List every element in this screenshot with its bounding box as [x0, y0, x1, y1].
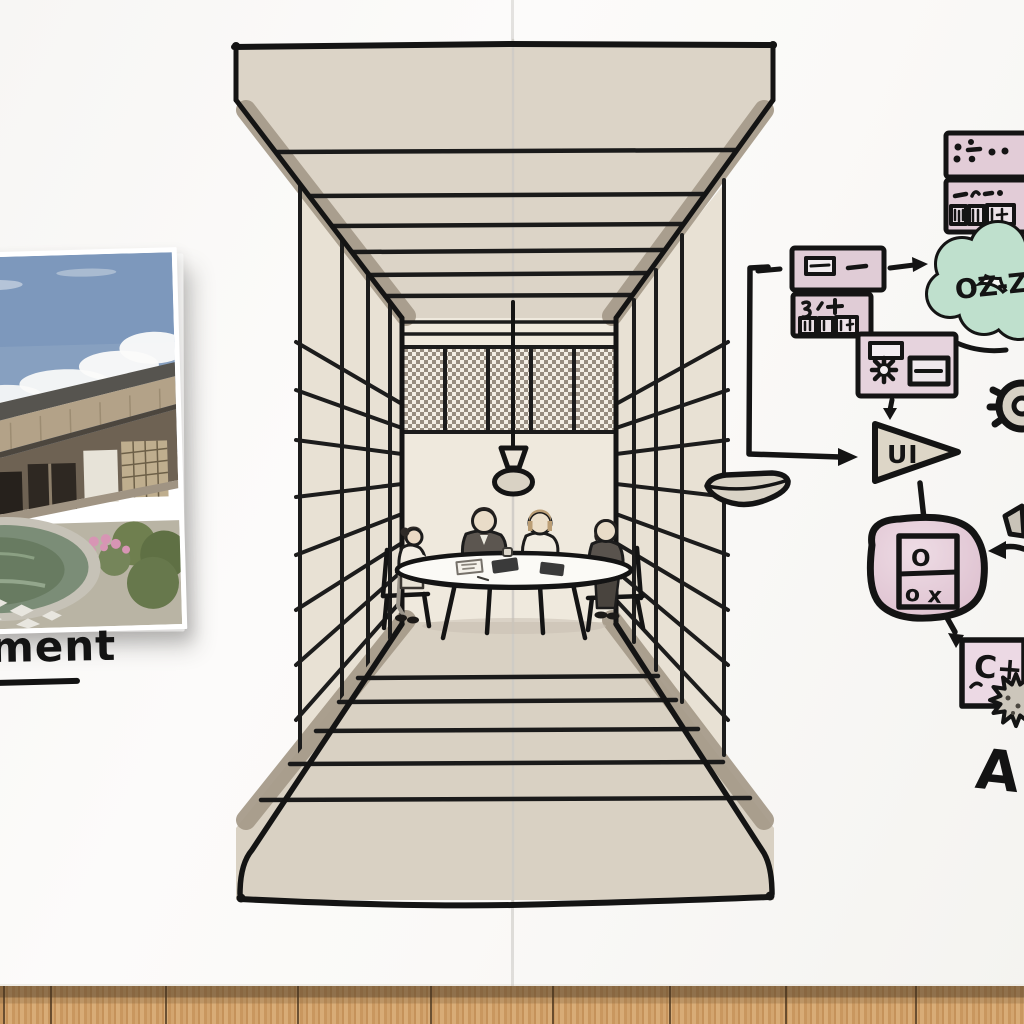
- toggle-top-label: O: [911, 546, 931, 572]
- card-with-thumbnail: [792, 248, 884, 290]
- table-shadow: [422, 618, 606, 634]
- arrow-into-toggle: [988, 541, 1024, 559]
- pinned-photo: [0, 247, 187, 635]
- handwritten-letter-a: A: [973, 742, 1022, 802]
- photo-frame: [0, 247, 187, 635]
- lamp-shade: [501, 448, 526, 468]
- photo-garden: [0, 512, 182, 630]
- note-box-dots: [946, 133, 1024, 177]
- arrow-card-down: [883, 400, 897, 420]
- handwritten-label-ment: ment: [0, 625, 117, 669]
- arrow-card-to-cloud: [890, 257, 928, 272]
- gear-node: [990, 383, 1024, 429]
- diamond-icon: [1005, 506, 1024, 536]
- flowchart: OZ-Z: [707, 133, 1024, 726]
- checkered-panels: [402, 347, 616, 432]
- toggle-panel-node: O o x: [870, 517, 984, 618]
- ui-arrow-node: UI: [875, 424, 958, 519]
- lamp-bulb: [495, 470, 533, 494]
- toggle-bottom-label: o x: [904, 582, 943, 610]
- card-with-marks: [793, 294, 871, 336]
- dash-cloud-to-gear: [957, 343, 1006, 351]
- japanese-house-photo: [0, 252, 182, 630]
- cloud-node: OZ-Z: [928, 223, 1024, 338]
- card-with-gear: [858, 334, 956, 396]
- bowl-node: [707, 473, 788, 504]
- ui-label: UI: [887, 440, 919, 469]
- whiteboard: { "board": { "surface": "whiteboard-two-…: [0, 0, 1024, 1024]
- perspective-room: [232, 40, 777, 905]
- gear-scribble-icon: [872, 358, 896, 382]
